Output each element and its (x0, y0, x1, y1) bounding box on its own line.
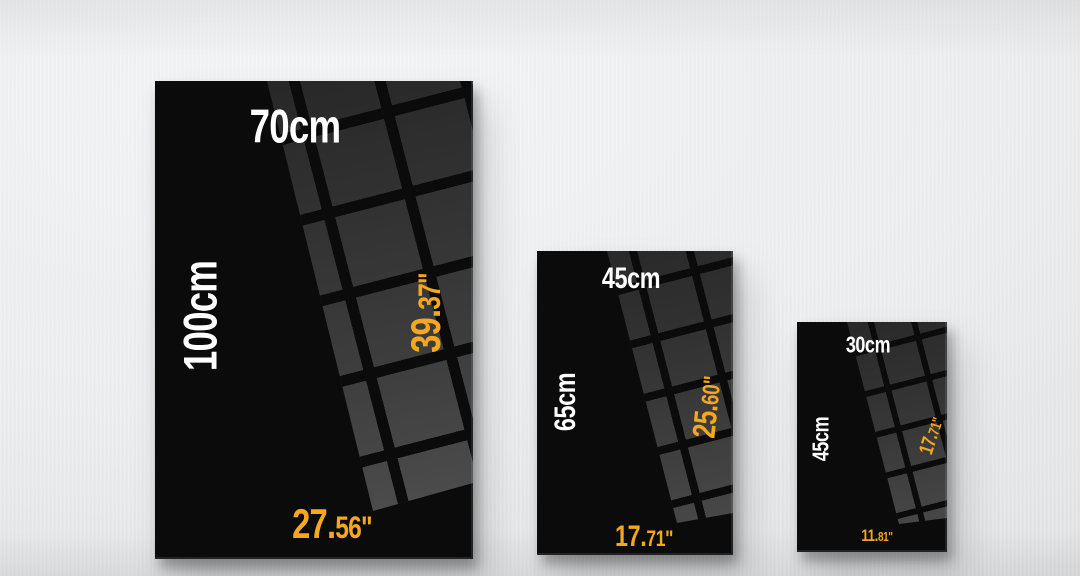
height-inches-decimal: 60" (697, 375, 727, 406)
width-cm-label: 30cm (846, 332, 890, 359)
width-inches-decimal: 71" (646, 526, 673, 551)
height-inches-main: 39. (402, 310, 449, 353)
width-inches-main: 17. (615, 520, 646, 553)
height-inches-label: 25.60" (685, 374, 728, 440)
height-inches-decimal: 37" (411, 273, 447, 310)
width-inches-label: 17.71" (615, 520, 673, 554)
width-inches-main: 11. (861, 526, 878, 545)
width-inches-label: 27.56" (292, 500, 372, 548)
width-cm-label: 70cm (250, 99, 341, 154)
height-inches-label: 39.37" (402, 273, 450, 353)
poster-small: 30cm 45cm 17.71" 11.81" (797, 322, 947, 552)
height-cm-label: 100cm (173, 261, 228, 371)
width-inches-main: 27. (292, 500, 335, 547)
poster-medium: 45cm 65cm 25.60" 17.71" (537, 251, 733, 555)
poster-large: 70cm 100cm 39.37" 27.56" (155, 81, 473, 559)
width-cm-label: 45cm (602, 262, 660, 296)
height-cm-label: 45cm (808, 417, 835, 461)
width-inches-decimal: 81" (878, 529, 893, 544)
width-inches-label: 11.81" (861, 526, 892, 546)
width-inches-decimal: 56" (335, 509, 372, 545)
height-inches-main: 25. (685, 403, 724, 440)
height-cm-label: 65cm (549, 373, 583, 431)
wall-background: 70cm 100cm 39.37" 27.56" 45cm 65cm 25.60… (0, 0, 1080, 576)
